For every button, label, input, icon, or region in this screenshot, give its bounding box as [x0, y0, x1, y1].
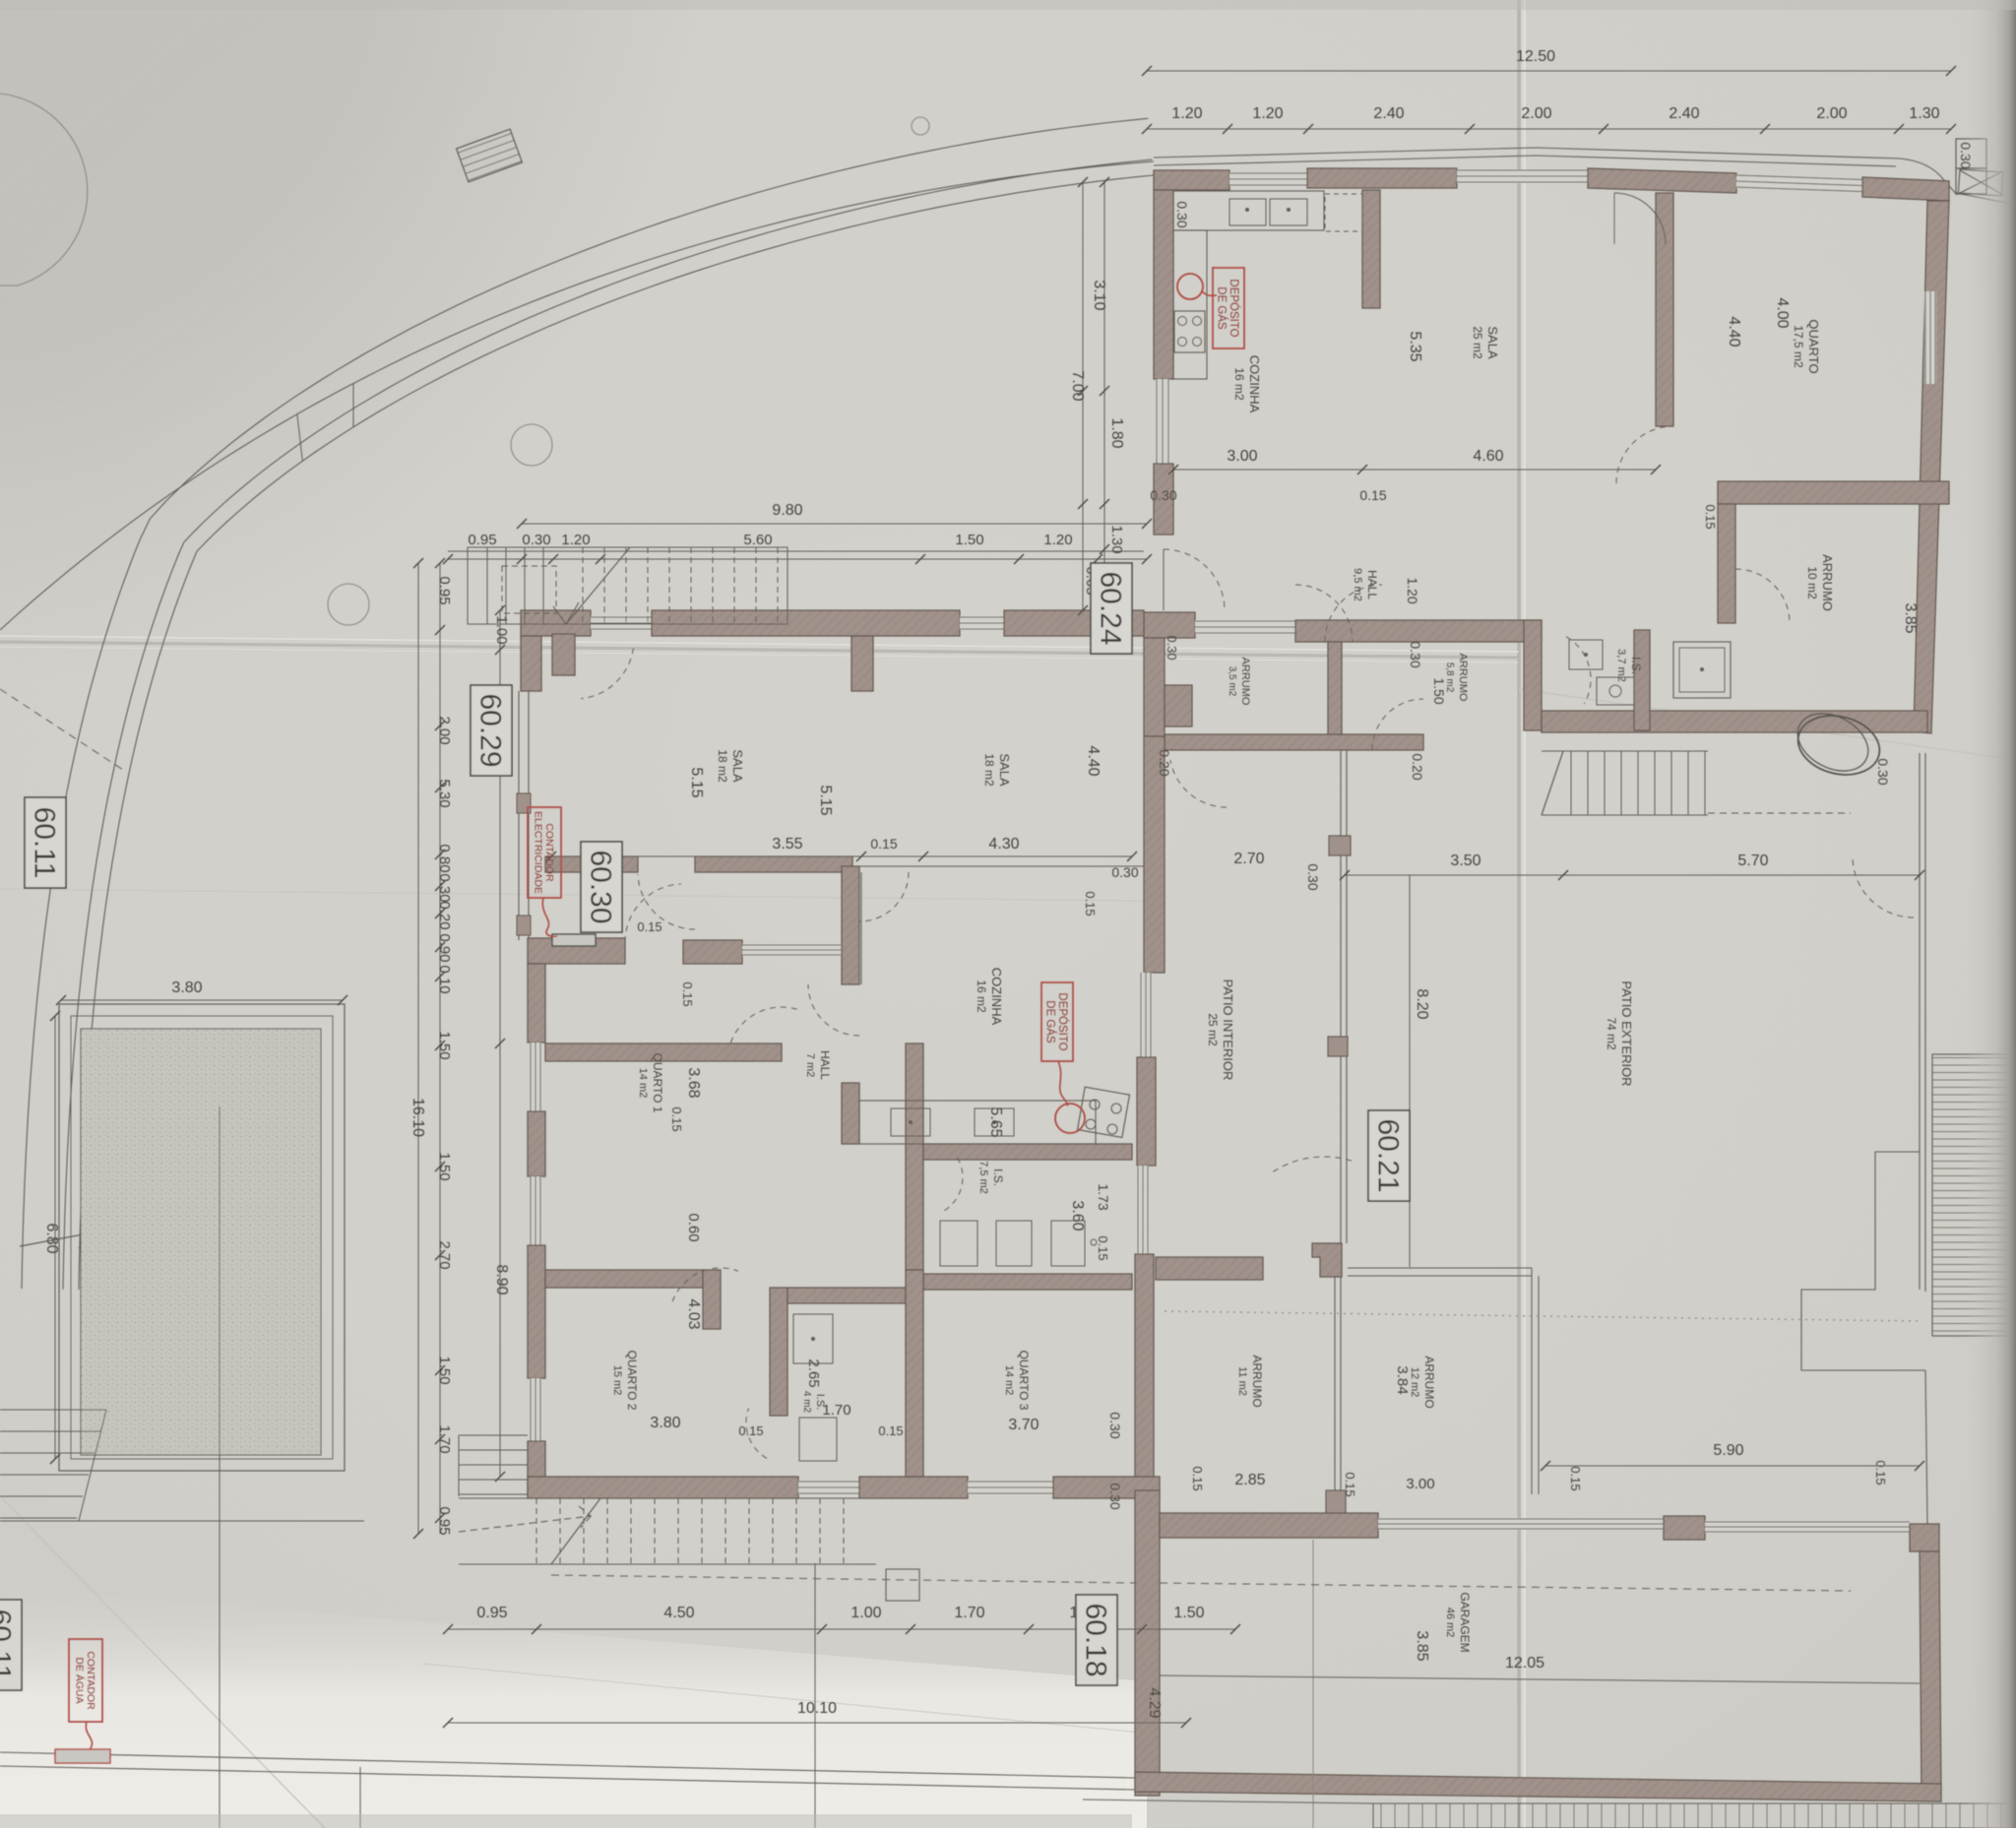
svg-text:GARAGEM: GARAGEM [1458, 1592, 1472, 1652]
svg-text:0.30: 0.30 [522, 532, 550, 548]
svg-text:1.73: 1.73 [1096, 1183, 1111, 1210]
svg-text:0.15: 0.15 [1873, 1460, 1888, 1485]
svg-text:15 m2: 15 m2 [611, 1365, 623, 1396]
svg-text:0.30: 0.30 [1150, 487, 1176, 503]
svg-text:2.85: 2.85 [1234, 1472, 1265, 1488]
svg-text:2.70: 2.70 [1233, 851, 1264, 867]
svg-text:1.00: 1.00 [493, 615, 510, 644]
svg-text:HALL: HALL [1365, 570, 1379, 600]
svg-text:0.95: 0.95 [436, 576, 453, 604]
svg-text:0.15: 0.15 [878, 1423, 903, 1438]
svg-text:1.50: 1.50 [436, 1152, 453, 1180]
svg-text:1.20: 1.20 [1252, 105, 1283, 122]
svg-text:1.80: 1.80 [1108, 417, 1125, 448]
svg-text:SALA: SALA [730, 749, 745, 783]
svg-text:3.60: 3.60 [1069, 1200, 1086, 1231]
svg-text:60.18: 60.18 [1080, 1603, 1112, 1676]
svg-text:4.40: 4.40 [1085, 745, 1102, 776]
svg-text:CONTADOR: CONTADOR [85, 1651, 96, 1710]
svg-text:5.30: 5.30 [436, 779, 453, 807]
svg-text:0.95: 0.95 [468, 532, 496, 548]
svg-text:3.50: 3.50 [1450, 853, 1480, 869]
svg-text:1.20: 1.20 [1171, 105, 1202, 122]
svg-text:ARRUMO: ARRUMO [1239, 658, 1251, 706]
svg-text:2.00: 2.00 [1521, 105, 1551, 122]
svg-text:SALA: SALA [997, 753, 1012, 787]
svg-text:60.21: 60.21 [1372, 1118, 1405, 1192]
svg-text:0.15: 0.15 [669, 1106, 684, 1131]
svg-text:18 m2: 18 m2 [982, 753, 996, 787]
svg-text:8.90: 8.90 [493, 1264, 510, 1295]
svg-text:DE GÁS: DE GÁS [1216, 286, 1228, 330]
svg-text:ELECTRICIDADE: ELECTRICIDADE [533, 811, 544, 894]
svg-text:3,5 m2: 3,5 m2 [1227, 666, 1237, 697]
svg-text:1.50: 1.50 [1431, 677, 1447, 704]
svg-text:0.60: 0.60 [685, 1213, 702, 1241]
svg-text:0.30: 0.30 [1305, 863, 1321, 890]
svg-text:3.84: 3.84 [1394, 1365, 1411, 1394]
svg-text:0.15: 0.15 [680, 981, 695, 1006]
svg-text:11 m2: 11 m2 [1236, 1366, 1248, 1396]
svg-text:16 m2: 16 m2 [1232, 367, 1246, 401]
svg-text:4.03: 4.03 [685, 1298, 702, 1329]
svg-text:0.15: 0.15 [870, 836, 897, 852]
svg-text:5.90: 5.90 [1713, 1442, 1743, 1459]
svg-text:1.20: 1.20 [1043, 532, 1072, 548]
svg-text:3.70: 3.70 [1008, 1417, 1039, 1433]
svg-text:0.30: 0.30 [1408, 641, 1423, 667]
svg-text:18 m2: 18 m2 [716, 749, 729, 783]
svg-text:0.20: 0.20 [436, 901, 453, 929]
svg-text:60.11: 60.11 [0, 1610, 17, 1681]
svg-text:0.80: 0.80 [436, 844, 453, 872]
svg-text:1.30: 1.30 [1108, 525, 1125, 553]
svg-text:1.70: 1.70 [436, 1424, 453, 1453]
svg-text:1.20: 1.20 [561, 532, 590, 548]
svg-text:0.15: 0.15 [738, 1423, 763, 1438]
svg-text:3.10: 3.10 [1091, 280, 1107, 310]
svg-text:5.35: 5.35 [1407, 331, 1423, 361]
svg-text:PATIO INTERIOR: PATIO INTERIOR [1221, 980, 1235, 1081]
svg-text:0.15: 0.15 [1359, 487, 1386, 503]
svg-text:0.15: 0.15 [1083, 891, 1098, 916]
svg-text:74 m2: 74 m2 [1605, 1017, 1618, 1050]
svg-text:0.15: 0.15 [1568, 1466, 1583, 1490]
svg-text:0.15: 0.15 [1096, 1235, 1110, 1260]
svg-text:0.90: 0.90 [436, 933, 453, 962]
svg-text:2.40: 2.40 [1669, 105, 1699, 122]
svg-text:5.65: 5.65 [987, 1106, 1004, 1137]
svg-text:1.50: 1.50 [436, 1031, 453, 1059]
svg-text:0.30: 0.30 [436, 873, 453, 902]
svg-text:I.S.: I.S. [991, 1169, 1005, 1186]
svg-text:0.30: 0.30 [1107, 1483, 1123, 1509]
svg-text:0.30: 0.30 [1107, 1412, 1123, 1438]
svg-text:3.85: 3.85 [1414, 1630, 1430, 1661]
svg-text:QUARTO 3: QUARTO 3 [1017, 1351, 1031, 1411]
svg-text:9.80: 9.80 [772, 502, 802, 519]
svg-text:4.30: 4.30 [988, 836, 1019, 853]
svg-text:3.80: 3.80 [650, 1415, 680, 1431]
svg-text:1.20: 1.20 [1405, 577, 1420, 603]
svg-text:2.70: 2.70 [436, 1240, 453, 1269]
svg-text:46 m2: 46 m2 [1444, 1608, 1456, 1638]
svg-text:0.95: 0.95 [476, 1605, 507, 1621]
svg-text:COZINHA: COZINHA [1247, 355, 1262, 413]
svg-text:8.20: 8.20 [1414, 988, 1430, 1019]
svg-text:3.55: 3.55 [772, 836, 802, 853]
svg-text:SALA: SALA [1485, 326, 1500, 359]
svg-text:3.80: 3.80 [171, 980, 202, 996]
svg-text:14 m2: 14 m2 [1003, 1365, 1015, 1396]
svg-text:COZINHA: COZINHA [989, 968, 1004, 1026]
svg-text:16.10: 16.10 [409, 1098, 426, 1137]
svg-text:1.70: 1.70 [822, 1402, 850, 1419]
svg-text:1.70: 1.70 [954, 1605, 984, 1621]
svg-text:12.50: 12.50 [1516, 48, 1555, 65]
svg-text:0.15: 0.15 [637, 919, 661, 934]
svg-text:2.00: 2.00 [1816, 105, 1847, 122]
svg-text:25 m2: 25 m2 [1206, 1013, 1220, 1046]
svg-text:QUARTO: QUARTO [1806, 319, 1821, 373]
svg-text:DEPÓSITO: DEPÓSITO [1228, 279, 1240, 337]
svg-text:3.68: 3.68 [685, 1067, 702, 1098]
svg-text:0.15: 0.15 [1190, 1466, 1205, 1490]
svg-text:4.29: 4.29 [1146, 1687, 1163, 1718]
svg-text:7,5 m2: 7,5 m2 [977, 1161, 989, 1194]
svg-text:0.30: 0.30 [1875, 758, 1891, 785]
svg-text:6.80: 6.80 [43, 1223, 60, 1253]
svg-text:3.85: 3.85 [1902, 602, 1919, 633]
svg-text:ARRUMO: ARRUMO [1250, 1355, 1264, 1407]
svg-text:0.30: 0.30 [1165, 635, 1179, 660]
svg-text:0.20: 0.20 [1157, 749, 1172, 776]
svg-text:PATIO EXTERIOR: PATIO EXTERIOR [1619, 980, 1634, 1086]
svg-text:0.15: 0.15 [1343, 1472, 1357, 1496]
svg-text:I.S.: I.S. [1629, 657, 1643, 674]
svg-text:1.00: 1.00 [850, 1605, 881, 1621]
svg-text:CONTADOR: CONTADOR [543, 823, 555, 882]
svg-text:2.65: 2.65 [805, 1359, 822, 1387]
svg-text:7.00: 7.00 [1069, 370, 1086, 401]
svg-text:2.40: 2.40 [1373, 105, 1404, 122]
svg-text:ARRUMO: ARRUMO [1457, 654, 1469, 702]
svg-text:3.00: 3.00 [1227, 448, 1257, 465]
svg-text:0.10: 0.10 [436, 965, 453, 993]
svg-text:5.15: 5.15 [688, 767, 705, 797]
svg-text:DEPÓSITO: DEPÓSITO [1056, 992, 1069, 1050]
svg-text:10 m2: 10 m2 [1805, 566, 1819, 600]
svg-text:25 m2: 25 m2 [1471, 326, 1484, 359]
svg-text:4.60: 4.60 [1473, 448, 1503, 465]
svg-text:0.30: 0.30 [1174, 201, 1190, 227]
svg-text:1.50: 1.50 [1173, 1605, 1204, 1621]
svg-text:60.11: 60.11 [29, 807, 61, 879]
svg-text:14 m2: 14 m2 [637, 1068, 649, 1099]
svg-text:4 m2: 4 m2 [801, 1391, 812, 1414]
svg-text:0.95: 0.95 [436, 1506, 453, 1535]
svg-text:HALL: HALL [818, 1050, 832, 1080]
svg-text:9,5 m2: 9,5 m2 [1352, 568, 1363, 601]
svg-text:1.30: 1.30 [1909, 105, 1939, 122]
svg-text:ARRUMO: ARRUMO [1820, 554, 1835, 611]
svg-text:12.05: 12.05 [1505, 1655, 1544, 1672]
svg-text:4.50: 4.50 [663, 1605, 694, 1621]
svg-text:0.30: 0.30 [1111, 864, 1138, 880]
svg-text:2.00: 2.00 [436, 716, 453, 744]
svg-text:1.50: 1.50 [436, 1356, 453, 1384]
svg-text:60.29: 60.29 [474, 693, 507, 767]
svg-text:3.00: 3.00 [1406, 1476, 1434, 1492]
svg-text:0.20: 0.20 [1410, 753, 1425, 780]
svg-text:5.15: 5.15 [817, 785, 834, 815]
svg-text:60.24: 60.24 [1095, 571, 1127, 645]
svg-text:16 m2: 16 m2 [975, 980, 988, 1013]
svg-text:1.50: 1.50 [955, 532, 983, 548]
svg-text:ARRUMO: ARRUMO [1422, 1356, 1436, 1408]
svg-text:QUARTO 1: QUARTO 1 [651, 1053, 664, 1113]
svg-text:4.40: 4.40 [1726, 316, 1742, 347]
svg-text:7 m2: 7 m2 [804, 1053, 816, 1077]
svg-text:DE ÁGUA: DE ÁGUA [74, 1657, 87, 1703]
svg-text:17,5 m2: 17,5 m2 [1792, 325, 1805, 368]
svg-text:4.00: 4.00 [1774, 297, 1791, 328]
svg-text:5.70: 5.70 [1737, 853, 1768, 869]
svg-text:10.10: 10.10 [797, 1700, 837, 1717]
svg-text:60.30: 60.30 [585, 850, 617, 923]
svg-text:QUARTO 2: QUARTO 2 [625, 1351, 639, 1411]
svg-text:5.60: 5.60 [743, 532, 772, 548]
svg-text:DE GÁS: DE GÁS [1044, 1000, 1057, 1043]
svg-text:0.15: 0.15 [1703, 504, 1718, 529]
